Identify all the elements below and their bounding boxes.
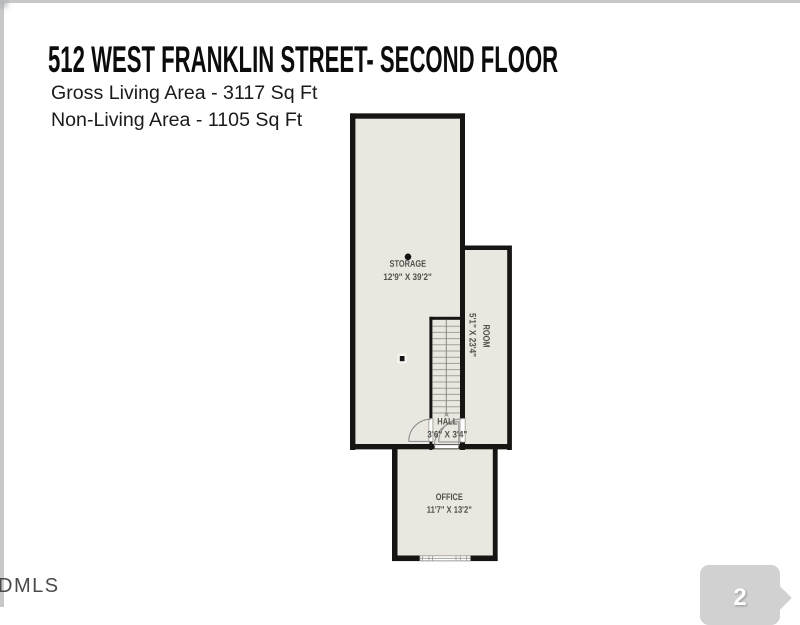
svg-text:STORAGE: STORAGE: [390, 259, 427, 270]
svg-text:12'9" X 39'2": 12'9" X 39'2": [383, 272, 432, 283]
